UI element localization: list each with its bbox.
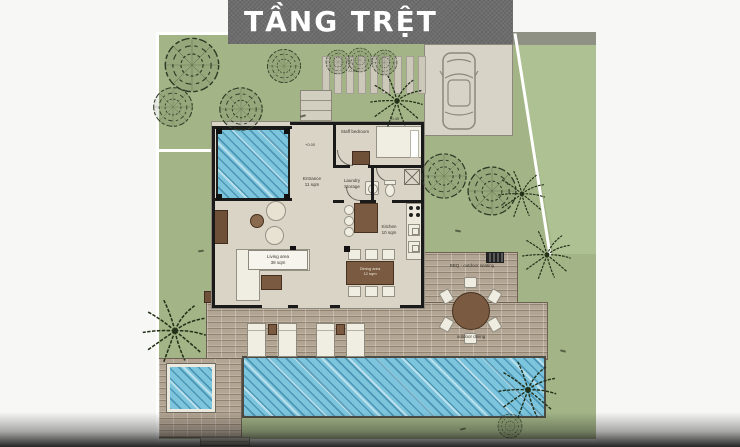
stool-icon [344, 205, 354, 215]
palm-tree-icon [520, 228, 574, 282]
dining-chair-icon [365, 286, 378, 297]
tv-cabinet [261, 275, 282, 290]
outdoor-dining-label: outdoor dining [436, 334, 506, 340]
pillar [344, 246, 350, 252]
toilet-bowl-icon [385, 184, 395, 197]
wall [330, 305, 340, 308]
palm-tree-icon [140, 296, 210, 366]
wall [212, 126, 215, 308]
console-table [214, 210, 228, 244]
wall [421, 122, 424, 308]
wall [400, 305, 424, 308]
tree-icon [347, 47, 373, 73]
plunge-pool [167, 364, 215, 412]
coffee-table-icon [265, 226, 284, 245]
wall [392, 200, 424, 203]
wall [333, 165, 350, 168]
level-marker: +0.00 [305, 142, 315, 147]
entrance-label: Entrance11 sqm [292, 176, 332, 187]
stool-icon [344, 227, 354, 237]
tree-icon [420, 152, 468, 200]
armchair-icon [250, 214, 264, 228]
car-icon [439, 50, 479, 132]
dining-chair-icon [382, 249, 395, 260]
entrance-water-feature [216, 128, 290, 200]
wardrobe-icon [352, 151, 370, 165]
floor-plan-page: Staff bedroom Entrance11 sqm +0.00 -0.45… [0, 0, 740, 447]
palm-tree-icon [496, 168, 548, 220]
sink-icon [408, 224, 420, 236]
dining-chair-icon [348, 286, 361, 297]
outdoor-table [452, 292, 490, 330]
title-banner: TẦNG TRỆT [228, 0, 513, 44]
wall [288, 305, 298, 308]
sun-lounger-icon [316, 323, 335, 357]
pillar [284, 194, 290, 200]
garden-divider-line [157, 149, 213, 152]
pillar [284, 128, 290, 134]
stove-icon [409, 206, 420, 217]
living-area-label: Living area38 sqm [248, 250, 308, 270]
boundary-line-top [156, 32, 230, 35]
sink-icon [408, 241, 420, 253]
street-strip [513, 32, 596, 45]
bbq-label: BBQ - outdoor seating [433, 263, 511, 269]
sun-lounger-icon [346, 323, 365, 357]
deck-steps [200, 437, 250, 446]
tree-icon [266, 48, 302, 84]
palm-tree-icon [496, 358, 560, 422]
sun-lounger-icon [278, 323, 297, 357]
wall [371, 168, 374, 202]
side-table [336, 324, 345, 335]
wall [333, 200, 344, 203]
laundry-label: LaundryStorage [336, 178, 368, 189]
side-table [268, 324, 277, 335]
dining-chair-icon [382, 286, 395, 297]
coffee-table-icon [266, 201, 286, 221]
bed-icon [376, 126, 422, 158]
dining-area-label: Dining area12 sqm [350, 266, 390, 276]
sun-lounger-icon [247, 323, 266, 357]
dining-chair-icon [365, 249, 378, 260]
shower-icon [404, 169, 420, 185]
wall [368, 165, 424, 168]
kitchen-label: Kitchen10 sqm [374, 224, 404, 235]
tree-icon [218, 86, 264, 132]
page-title: TẦNG TRỆT [228, 0, 513, 44]
pillar [216, 194, 222, 200]
outdoor-chair-icon [464, 277, 477, 288]
stool-icon [344, 216, 354, 226]
bbq-grill-icon [486, 252, 504, 263]
palm-tree-icon [368, 72, 426, 130]
wall [212, 305, 262, 308]
wall [212, 198, 292, 201]
tree-icon [152, 86, 194, 128]
parking-pad [424, 44, 513, 136]
